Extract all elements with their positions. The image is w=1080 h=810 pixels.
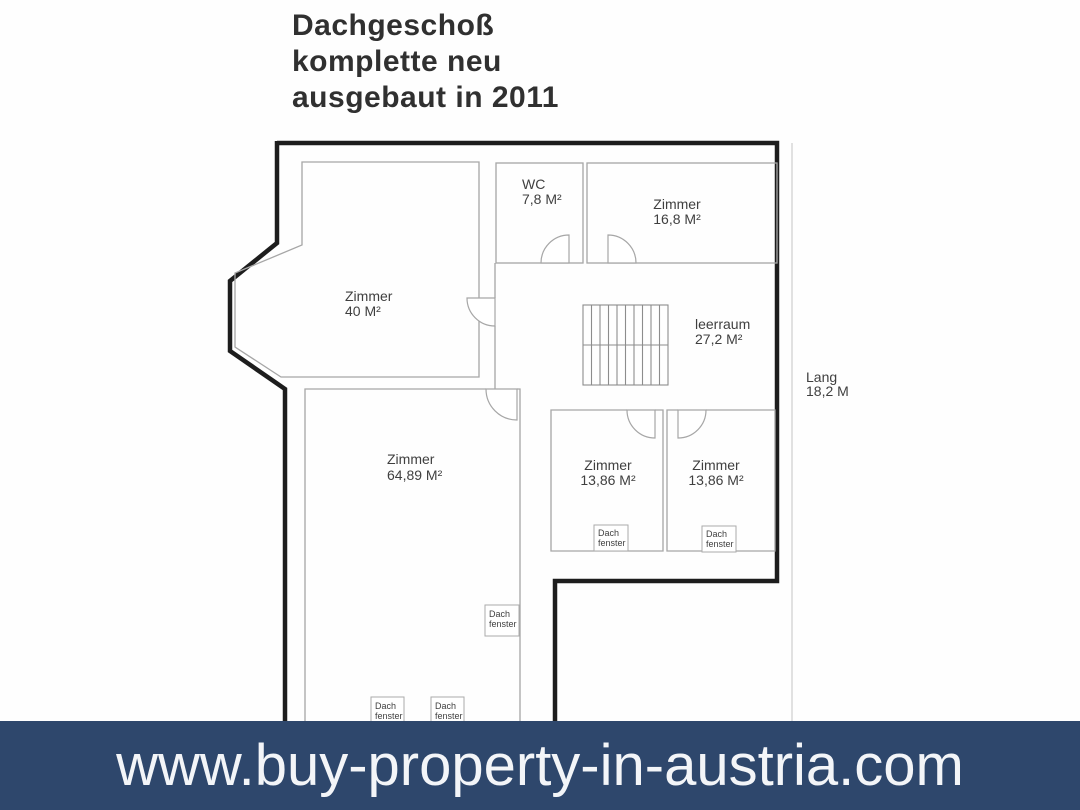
- room-zimmer-16-8-area: 16,8 M²: [653, 211, 701, 227]
- room-zimmer-13-86-right-label: Zimmer: [692, 457, 740, 473]
- room-zimmer-64-89-area: 64,89 M²: [387, 467, 443, 483]
- room-zimmer-64-89-label: Zimmer: [387, 451, 435, 467]
- roof-window-5-line2: fenster: [435, 711, 463, 721]
- room-leerraum-label: leerraum: [695, 316, 750, 332]
- room-wc-area: 7,8 M²: [522, 191, 562, 207]
- website-url: www.buy-property-in-austria.com: [116, 732, 964, 799]
- floor-plan-drawing: WC 7,8 M² Zimmer 16,8 M² Zimmer 40 M² le…: [0, 0, 1080, 721]
- stairs-icon: [583, 305, 668, 385]
- room-zimmer-13-86-left-area: 13,86 M²: [580, 472, 636, 488]
- website-banner: www.buy-property-in-austria.com: [0, 721, 1080, 810]
- room-zimmer-64-89-outline: [305, 389, 520, 721]
- roof-window-5-line1: Dach: [435, 701, 456, 711]
- roof-window-2-line1: Dach: [598, 528, 619, 538]
- roof-window-1-line2: fenster: [489, 619, 517, 629]
- room-zimmer-16-8-label: Zimmer: [653, 196, 701, 212]
- floor-plan: WC 7,8 M² Zimmer 16,8 M² Zimmer 40 M² le…: [0, 0, 1080, 721]
- roof-window-4-line2: fenster: [375, 711, 403, 721]
- roof-window-3-line1: Dach: [706, 529, 727, 539]
- door-arc-icon-zimmer-13-86-left: [627, 410, 655, 438]
- room-zimmer-13-86-right-area: 13,86 M²: [688, 472, 744, 488]
- outer-wall-top-right: [277, 143, 777, 721]
- dimension-value: 18,2 M: [806, 383, 849, 399]
- room-wc-label: WC: [522, 176, 545, 192]
- door-arc-icon-wc: [541, 235, 569, 263]
- room-zimmer-40-label: Zimmer: [345, 288, 393, 304]
- room-zimmer-13-86-left-label: Zimmer: [584, 457, 632, 473]
- room-leerraum-area: 27,2 M²: [695, 331, 743, 347]
- door-arc-icon-zimmer-40: [467, 298, 495, 326]
- room-zimmer-40-outline: [235, 162, 479, 377]
- roof-window-1-line1: Dach: [489, 609, 510, 619]
- outer-wall-left-bay: [230, 141, 285, 721]
- roof-window-4-line1: Dach: [375, 701, 396, 711]
- room-zimmer-40-area: 40 M²: [345, 303, 381, 319]
- door-arc-icon-zimmer-13-86-right: [678, 410, 706, 438]
- door-arc-icon-zimmer-64-89: [486, 389, 517, 420]
- roof-window-2-line2: fenster: [598, 538, 626, 548]
- roof-window-3-line2: fenster: [706, 539, 734, 549]
- door-arc-icon-zimmer-16-8: [608, 235, 636, 263]
